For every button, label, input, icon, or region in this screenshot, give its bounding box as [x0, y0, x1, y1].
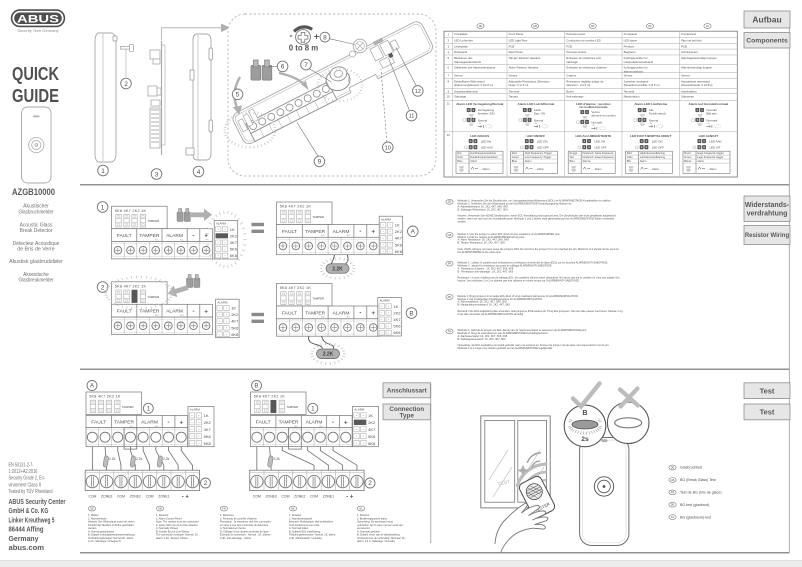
svg-text:6K8: 6K8 [230, 253, 238, 258]
svg-text:ALARM: ALARM [380, 299, 391, 303]
svg-text:Grøn: Grøn [627, 155, 633, 159]
svg-text:2s: 2s [581, 436, 589, 443]
svg-text:10: 10 [385, 145, 391, 151]
svg-text:Tested by TÜV Rheinland: Tested by TÜV Rheinland [9, 488, 53, 495]
svg-text:Alarm-LED Verriegelung/Normal: Alarm-LED Verriegelung/Normal [456, 102, 503, 106]
svg-text:LED ON: LED ON [594, 140, 605, 144]
svg-text:Grün: Grün [457, 155, 463, 159]
svg-text:4,4K, Manipulation: Uendelig: 4,4K, Manipulation: Uendelig [289, 536, 322, 540]
svg-text:4K7: 4K7 [204, 427, 212, 432]
svg-text:Saboteren: Saboteren [681, 95, 694, 99]
svg-text:Akustisk glasbrudsføler: Akustisk glasbrudsføler [9, 259, 63, 265]
svg-text:4K7: 4K7 [395, 236, 403, 241]
svg-text:-: - [193, 233, 195, 239]
svg-text:N.C.: N.C. [347, 317, 351, 319]
svg-text:Blå: Blå [627, 159, 631, 163]
svg-text:Sensor: Sensor [454, 74, 463, 78]
svg-text:FR: FR [591, 24, 595, 28]
svg-text:.....Alarm: .....Alarm [591, 167, 601, 171]
svg-text:NL: NL [671, 515, 675, 519]
svg-text:Normaal: Normaal [706, 118, 717, 122]
svg-text:(Erkennungsbereich: 0 bis 8 m): (Erkennungsbereich: 0 bis 8 m) [454, 83, 493, 87]
svg-text:Glasbruchmelder: Glasbruchmelder [18, 209, 53, 215]
svg-text:Bleu: Bleu [570, 159, 576, 163]
svg-text:4K7: 4K7 [230, 240, 238, 245]
svg-text:FAULT: FAULT [91, 420, 106, 426]
svg-text:B: B [409, 310, 413, 317]
svg-text:LED ALLUMÉE/ÉTEINTE: LED ALLUMÉE/ÉTEINTE [575, 133, 611, 138]
svg-text:range: 0 to 8 m): range: 0 to 8 m) [509, 83, 529, 87]
svg-text:Terminal: Terminal [624, 89, 635, 93]
svg-text:6K8: 6K8 [204, 441, 212, 446]
svg-text:6: 6 [281, 64, 285, 71]
svg-text:LED AN: LED AN [481, 140, 491, 144]
svg-text:Anschlussart: Anschlussart [387, 388, 428, 395]
svg-text:LED AAN: LED AAN [709, 140, 721, 144]
svg-text:DK: DK [648, 24, 652, 28]
svg-text:BG (Break Glass) Test: BG (Break Glass) Test [680, 478, 716, 482]
svg-text:ALARM: ALARM [216, 222, 227, 226]
svg-text:Alarm Resistor Headers: Alarm Resistor Headers [509, 66, 539, 70]
svg-text:1: 1 [101, 204, 105, 211]
svg-text:manipulationsmodstand: manipulationsmodstand [624, 60, 654, 64]
svg-text:LED ON: LED ON [652, 140, 663, 144]
svg-text:LED-Lichtrohre: LED-Lichtrohre [454, 39, 473, 43]
svg-text:NL: NL [706, 24, 710, 28]
svg-text:Sensor: Sensor [624, 74, 633, 78]
svg-text:de Bris de Verre: de Bris de Verre [17, 247, 55, 253]
svg-text:Alarmbestendige koppen: Alarmbestendige koppen [681, 66, 712, 70]
svg-text:1:2012+A2:2016: 1:2012+A2:2016 [9, 469, 38, 475]
svg-text:BG-test (glasbrud): BG-test (glasbrud) [680, 503, 709, 507]
svg-text:4,4K, anti-sabotage : Infinie: 4,4K, anti-sabotage : Infinie [220, 536, 252, 540]
svg-text:+: + [204, 234, 208, 240]
svg-text:N.C.: N.C. [321, 235, 325, 237]
svg-text:Day: ON: Day: ON [534, 111, 545, 115]
svg-text:TAMPER: TAMPER [286, 405, 298, 409]
svg-text:PCB: PCB [509, 44, 515, 48]
svg-text:N.C.: N.C. [155, 239, 159, 241]
svg-text:Anschlussklemmen: Anschlussklemmen [454, 89, 479, 93]
svg-text:B : Résistance anti-sabotage :: B : Résistance anti-sabotage : 1K, 2K2, … [458, 269, 514, 273]
svg-text:Sabotage: Sabotage [454, 95, 466, 99]
svg-text:Rood: Rood [684, 151, 691, 155]
svg-text:Low Frequency Trigger: Low Frequency Trigger [525, 155, 552, 159]
svg-text:Déclench. haute fréquence: Déclench. haute fréquence [583, 151, 615, 155]
svg-text:2.2K: 2.2K [323, 352, 334, 358]
svg-text:N.C.: N.C. [321, 317, 325, 319]
svg-text:2.2K: 2.2K [332, 266, 343, 272]
svg-text:2: 2 [124, 81, 128, 88]
svg-text:Alarm-led Grendel/normaal: Alarm-led Grendel/normaal [689, 102, 729, 106]
svg-text:Rückwand: Rückwand [454, 50, 468, 54]
svg-text:High Frequency Trigger: High Frequency Trigger [525, 151, 552, 155]
svg-text:2K2: 2K2 [204, 420, 212, 425]
svg-text:LED ON: LED ON [537, 140, 548, 144]
svg-text:B: B [254, 383, 258, 390]
svg-text:ZONE2: ZONE2 [294, 495, 305, 499]
svg-text:Alarm: Alarm [525, 159, 532, 163]
svg-text:Arretiert: EIN: Arretiert: EIN [478, 111, 495, 115]
svg-text:Niederfrequenzauslöser: Niederfrequenzauslöser [470, 155, 498, 159]
svg-text:DK: DK [291, 506, 295, 510]
svg-text:1K: 1K [231, 305, 236, 310]
svg-text:AZGB10000: AZGB10000 [12, 187, 55, 198]
svg-text:TAMPER: TAMPER [114, 420, 134, 426]
svg-text:5K6: 5K6 [393, 324, 401, 329]
svg-text:8: 8 [323, 34, 327, 41]
svg-text:DK: DK [671, 503, 675, 507]
svg-text:5K6: 5K6 [368, 434, 376, 439]
svg-text:TAMPER: TAMPER [279, 420, 299, 426]
svg-text:Sensor: Sensor [681, 74, 690, 78]
svg-text:2.2k: 2.2k [274, 457, 281, 461]
svg-text:Blijf aan: Blijf aan [706, 111, 717, 115]
svg-text:TAMPER: TAMPER [305, 310, 325, 316]
svg-text:ALARM: ALARM [141, 420, 158, 426]
svg-text:COM: COM [281, 495, 289, 499]
svg-text:TAMPER: TAMPER [312, 215, 324, 219]
svg-text:-: - [359, 229, 361, 235]
svg-text:2K2: 2K2 [368, 420, 376, 425]
svg-text:ZONE3: ZONE3 [265, 495, 276, 499]
svg-text:FAULT: FAULT [117, 233, 132, 239]
svg-text:Frontpanel: Frontpanel [624, 32, 638, 36]
svg-text:ZONE1: ZONE1 [158, 495, 169, 499]
svg-text:Bagpanel: Bagpanel [624, 50, 636, 54]
svg-text:Frontplatte: Frontplatte [454, 32, 468, 36]
svg-text:NL: NL [359, 506, 363, 510]
svg-text:Sensor: Sensor [509, 74, 518, 78]
svg-text:2: 2 [204, 480, 208, 487]
svg-text:+: + [179, 420, 183, 426]
svg-text:GB: GB [671, 478, 675, 482]
svg-text:Hochfrequenzauslöser: Hochfrequenzauslöser [470, 151, 496, 155]
svg-text:Højfrekvensudløsning: Højfrekvensudløsning [640, 151, 666, 155]
svg-text:4: 4 [197, 169, 201, 176]
svg-text:sabotage: sabotage [566, 60, 578, 64]
svg-text:Lavfrekvensudløsning: Lavfrekvensudløsning [640, 155, 666, 159]
svg-text:Normal: Normal [534, 118, 544, 122]
svg-text:Rød: Rød [627, 151, 632, 155]
svg-text:Normal: Normal [478, 118, 488, 122]
svg-text:2 bør ikke anvendes på ALARM/M: 2 bør ikke anvendes på ALARM/MANIPULATIO… [458, 312, 525, 316]
svg-text:Break Detector: Break Detector [20, 228, 53, 234]
svg-text:N.C.: N.C. [180, 315, 184, 317]
svg-text:2K2: 2K2 [393, 310, 401, 315]
svg-text:TAMPER: TAMPER [312, 297, 324, 301]
svg-text:TAMPER: TAMPER [122, 405, 134, 409]
svg-text:LED OFF: LED OFF [652, 146, 664, 150]
svg-text:COM: COM [253, 495, 261, 499]
svg-text:GB: GB [448, 233, 452, 237]
svg-text:DE: DE [90, 506, 94, 510]
svg-text:Lage frequentie trigger: Lage frequentie trigger [697, 155, 723, 159]
svg-text:ALARM: ALARM [306, 420, 323, 426]
svg-text:FR: FR [222, 506, 226, 510]
svg-text:Red: Red [512, 151, 517, 155]
svg-text:Panneau arrière: Panneau arrière [566, 50, 587, 54]
svg-text:GB: GB [533, 24, 537, 28]
svg-text:9: 9 [318, 159, 322, 166]
svg-text:Alarm: Alarm [697, 159, 704, 163]
svg-text:4K7: 4K7 [368, 427, 376, 432]
svg-text:Tamper: Tamper [509, 95, 518, 99]
svg-text:Anti-sabotage: Anti-sabotage [566, 95, 584, 99]
svg-text:Panneau avant: Panneau avant [566, 32, 585, 36]
svg-text:FR: FR [671, 490, 675, 494]
svg-text:LED FOR TÆNDT/SLUKKET: LED FOR TÆNDT/SLUKKET [630, 134, 671, 138]
svg-text:Capteur: Capteur [566, 74, 576, 78]
svg-text:Blau: Blau [457, 159, 463, 163]
svg-text:12: 12 [415, 89, 421, 95]
svg-text:B: Manipulationsmodstand: 1K,: B: Manipulationsmodstand: 1K, 2K2, 4K7, … [458, 303, 511, 307]
svg-text:.....Alarm: .....Alarm [479, 167, 489, 171]
svg-text:werden.: werden. [458, 220, 467, 224]
svg-text:5K8 4K7 2K2 1K: 5K8 4K7 2K2 1K [254, 395, 286, 399]
svg-text:A: A [411, 229, 416, 236]
svg-text:1: 1 [311, 406, 315, 413]
svg-text:Vert: Vert [570, 155, 575, 159]
svg-text:ALARM: ALARM [333, 229, 350, 235]
svg-text:TAMPER: TAMPER [147, 295, 159, 299]
svg-text:1K: 1K [204, 413, 209, 418]
svg-text:+: + [371, 311, 375, 317]
svg-text:2: 2 [368, 480, 372, 487]
svg-text:verrouillée/normale: verrouillée/normale [579, 105, 608, 109]
svg-text:Leiterplatte: Leiterplatte [454, 44, 468, 48]
svg-text:5K6: 5K6 [204, 434, 212, 439]
svg-text:Blue: Blue [512, 159, 518, 163]
svg-text:Germany: Germany [9, 534, 40, 543]
svg-text:2K2: 2K2 [230, 233, 238, 238]
svg-text:Widerstands-: Widerstands- [745, 202, 790, 209]
svg-text:LED OFF: LED OFF [594, 146, 606, 150]
svg-text:Terminal: Terminal [509, 89, 520, 93]
svg-text:Normal: Normal [649, 118, 659, 122]
svg-text:ALARM: ALARM [381, 217, 392, 221]
svg-text:11: 11 [447, 102, 450, 106]
svg-text:Methode 1 & 2 mogen niet worde: Methode 1 & 2 mogen niet worden gebruikt… [458, 346, 554, 350]
svg-text:FAULT: FAULT [282, 229, 297, 235]
svg-text:7: 7 [304, 62, 308, 69]
svg-text:ABUS Security Center: ABUS Security Center [9, 497, 66, 506]
svg-text:6K8: 6K8 [393, 330, 401, 335]
svg-text:2K2: 2K2 [395, 229, 403, 234]
svg-text:BG (glasbreuk)-test: BG (glasbreuk)-test [680, 515, 711, 519]
svg-text:COM: COM [117, 495, 125, 499]
svg-text:Borne: Borne [566, 89, 574, 93]
svg-text:PCB: PCB [566, 44, 572, 48]
svg-text:Manipulation: Manipulation [624, 95, 640, 99]
svg-text:5: 5 [236, 92, 240, 99]
svg-text:DE: DE [671, 465, 675, 469]
svg-text:ALARM: ALARM [333, 310, 350, 316]
svg-text:COM: COM [146, 495, 154, 499]
svg-text:+: + [314, 32, 319, 42]
svg-text:Hoge frequentie trigger: Hoge frequentie trigger [697, 151, 724, 155]
svg-text:ALARM: ALARM [354, 408, 365, 412]
svg-text:Front Panel: Front Panel [509, 32, 524, 36]
svg-text:PCB: PCB [681, 44, 687, 48]
svg-text:Linker Kreuthweg 5: Linker Kreuthweg 5 [9, 515, 55, 524]
svg-text:4K7: 4K7 [231, 319, 239, 324]
svg-text:+: + [344, 420, 348, 426]
svg-text:-: - [289, 31, 292, 42]
svg-text:-: - [168, 420, 170, 426]
svg-text:-: - [332, 420, 334, 426]
svg-text:the ALARM/TAMPER at the same t: the ALARM/TAMPER at the same time. [458, 250, 503, 254]
svg-text:12: 12 [447, 133, 451, 137]
svg-text:Sabotagewiderstands: Sabotagewiderstands [454, 60, 482, 64]
svg-text:1: 1 [147, 406, 151, 413]
svg-text:10: 10 [447, 95, 451, 99]
svg-text:broche. Les méthodes 1 et 2 ne: broche. Les méthodes 1 et 2 ne doivent p… [458, 278, 580, 282]
svg-text:DK: DK [448, 295, 452, 299]
svg-text:Sabotagebestendige koppen: Sabotagebestendige koppen [681, 56, 717, 60]
svg-text:Conducteur de lumière LED: Conducteur de lumière LED [566, 39, 601, 43]
svg-text:Green: Green [512, 155, 520, 159]
svg-text:B: Sabotageweerstand: 1K, 2K2,: B: Sabotageweerstand: 1K, 2K2, 4K7, 5K6 [458, 337, 507, 341]
svg-text:1K: 1K [230, 227, 235, 232]
svg-text:6K8: 6K8 [368, 441, 376, 446]
svg-text:-: - [193, 309, 195, 315]
svg-text:FAULT: FAULT [282, 310, 297, 316]
svg-text:- +: - + [346, 495, 354, 501]
svg-text:ABUS: ABUS [17, 14, 59, 26]
svg-text:FR: FR [448, 262, 452, 266]
svg-text:TAMPER: TAMPER [139, 309, 159, 315]
svg-text:-: - [359, 311, 361, 317]
svg-text:Printkort: Printkort [624, 44, 635, 48]
svg-text:LED UIT: LED UIT [709, 146, 720, 150]
svg-text:Alarm-LED Latch/Normal: Alarm-LED Latch/Normal [518, 102, 555, 106]
svg-text:Frontpaneel: Frontpaneel [681, 32, 696, 36]
svg-text:86444 Affing: 86444 Affing [9, 525, 44, 534]
svg-text:4K7: 4K7 [393, 317, 401, 322]
svg-text:Rot: Rot [457, 151, 461, 155]
svg-text:Test de BG (bris de glace): Test de BG (bris de glace) [680, 491, 722, 495]
svg-text:1: 1 [101, 168, 105, 175]
svg-text:Security Tech Germany: Security Tech Germany [17, 28, 59, 33]
svg-text:LED ON/OFF: LED ON/OFF [526, 134, 545, 138]
svg-text:Test: Test [760, 386, 775, 395]
svg-text:COM: COM [310, 495, 318, 499]
svg-text:ZONE2: ZONE2 [130, 495, 141, 499]
svg-text:N.C.: N.C. [347, 235, 351, 237]
svg-text:Forbliv tændt: Forbliv tændt [649, 111, 666, 115]
svg-text:Components: Components [746, 38, 788, 45]
svg-text:ZONE1: ZONE1 [323, 495, 334, 499]
svg-text:Rear Panel: Rear Panel [509, 50, 523, 54]
svg-text:Test: Test [760, 408, 775, 417]
svg-text:Achterpaneel: Achterpaneel [681, 50, 698, 54]
svg-text:Stiftleisten des Alarmwidersta: Stiftleisten des Alarmwiderstands [454, 66, 496, 70]
svg-text:vironment Class II: vironment Class II [9, 482, 42, 488]
svg-text:5K6: 5K6 [231, 325, 239, 330]
svg-text:6K8: 6K8 [395, 249, 403, 254]
svg-text:Alarme: Alarme [583, 159, 592, 163]
svg-text:LED OFF: LED OFF [537, 146, 549, 150]
svg-text:alarm: 4,4 K, Sabotage: Oneind: alarm: 4,4 K, Sabotage: Oneindig [357, 539, 395, 543]
svg-text:Glasbruchtest: Glasbruchtest [680, 466, 702, 470]
svg-text:B: B [582, 408, 587, 417]
svg-text:- +: - + [182, 495, 190, 501]
svg-text:COM: COM [88, 495, 96, 499]
svg-text:NL: NL [448, 329, 452, 333]
svg-text:FAULT: FAULT [117, 309, 132, 315]
svg-text:0 to 8 m: 0 to 8 m [289, 43, 319, 52]
svg-text:Alarm: Alarm [470, 159, 477, 163]
svg-text:Type: Type [400, 413, 415, 420]
svg-text:ALARM: ALARM [166, 309, 183, 315]
svg-text:TAMPER: TAMPER [139, 233, 159, 239]
svg-text:TAMPER: TAMPER [305, 229, 325, 235]
svg-text:werden, wenn sie nicht auf den: werden, wenn sie nicht auf den Kontaktst… [458, 217, 615, 221]
svg-text:1K: 1K [393, 304, 398, 309]
svg-text:abus.com: abus.com [9, 543, 45, 552]
svg-text:Aufbau: Aufbau [752, 15, 781, 25]
svg-text:+: + [204, 309, 208, 315]
svg-text:Groen: Groen [684, 155, 692, 159]
svg-text:Security Grade 2, En-: Security Grade 2, En- [9, 476, 46, 482]
svg-text:5K8 4K7 2K2 1K: 5K8 4K7 2K2 1K [280, 286, 312, 290]
svg-text:Rouge: Rouge [570, 151, 578, 155]
svg-text:6K8: 6K8 [231, 332, 239, 337]
svg-text:allumée en continu: allumée en continu [591, 113, 616, 117]
svg-text:Glasbreukmelder: Glasbreukmelder [18, 278, 53, 284]
svg-text:TAMPER: TAMPER [147, 219, 159, 223]
svg-text:2K2: 2K2 [231, 312, 239, 317]
svg-text:LED AN/AUS: LED AN/AUS [470, 134, 489, 138]
svg-text:GUIDE: GUIDE [12, 85, 59, 106]
svg-text:Resistor Wiring: Resistor Wiring [745, 233, 790, 239]
svg-text:Aansluitklem: Aansluitklem [681, 89, 698, 93]
svg-text:Alarm-LED Lås/Norma: Alarm-LED Lås/Norma [634, 102, 667, 106]
svg-text:ALARM: ALARM [217, 300, 228, 304]
svg-text:ALARM: ALARM [190, 408, 201, 412]
svg-text:(Detektionsområde: 0 til 8 m): (Detektionsområde: 0 til 8 m) [624, 83, 660, 87]
svg-text:.....Alarm: .....Alarm [649, 167, 659, 171]
svg-text:5K8 4K7 2K2 1K: 5K8 4K7 2K2 1K [89, 395, 121, 399]
svg-text:DE: DE [479, 24, 483, 28]
svg-text:QUICK: QUICK [12, 63, 59, 84]
svg-text:FAULT: FAULT [256, 420, 271, 426]
svg-text:1K: 1K [368, 413, 373, 418]
svg-text:N.C.: N.C. [180, 239, 184, 241]
svg-text:5K8 4K7 2K2 1K: 5K8 4K7 2K2 1K [115, 209, 147, 213]
svg-text:11: 11 [409, 114, 415, 120]
svg-text:(Detectiebereik: 0 tot 8m): (Detectiebereik: 0 tot 8m) [681, 83, 712, 87]
svg-text:2.2k: 2.2k [163, 457, 170, 461]
svg-text:GmbH & Co. KG: GmbH & Co. KG [9, 506, 49, 515]
svg-text:1K: 1K [395, 222, 400, 227]
svg-text:Déclench. basse fréquence: Déclench. basse fréquence [583, 155, 615, 159]
svg-text:2: 2 [101, 284, 105, 291]
svg-text:LED AUS: LED AUS [481, 146, 493, 150]
svg-text:Embases de résistance d'alarme: Embases de résistance d'alarme [566, 66, 607, 70]
svg-text:LED Light Pipe: LED Light Pipe [509, 39, 528, 43]
svg-text:verdrahtung: verdrahtung [747, 211, 788, 218]
svg-text:+: + [371, 230, 375, 236]
svg-text:B: Sabotage-Widerstand: 1K, 2K: B: Sabotage-Widerstand: 1K, 2K2, 4K7, 5K… [458, 207, 509, 211]
svg-text:DE: DE [448, 200, 452, 204]
svg-text:3: 3 [155, 171, 159, 178]
svg-text:5K6: 5K6 [230, 247, 238, 252]
svg-text:5K8 4K7 2K2 1K: 5K8 4K7 2K2 1K [280, 205, 312, 209]
svg-text:.....Alarm: .....Alarm [534, 167, 544, 171]
svg-text:détection : 0 à 8 m): détection : 0 à 8 m) [566, 83, 590, 87]
